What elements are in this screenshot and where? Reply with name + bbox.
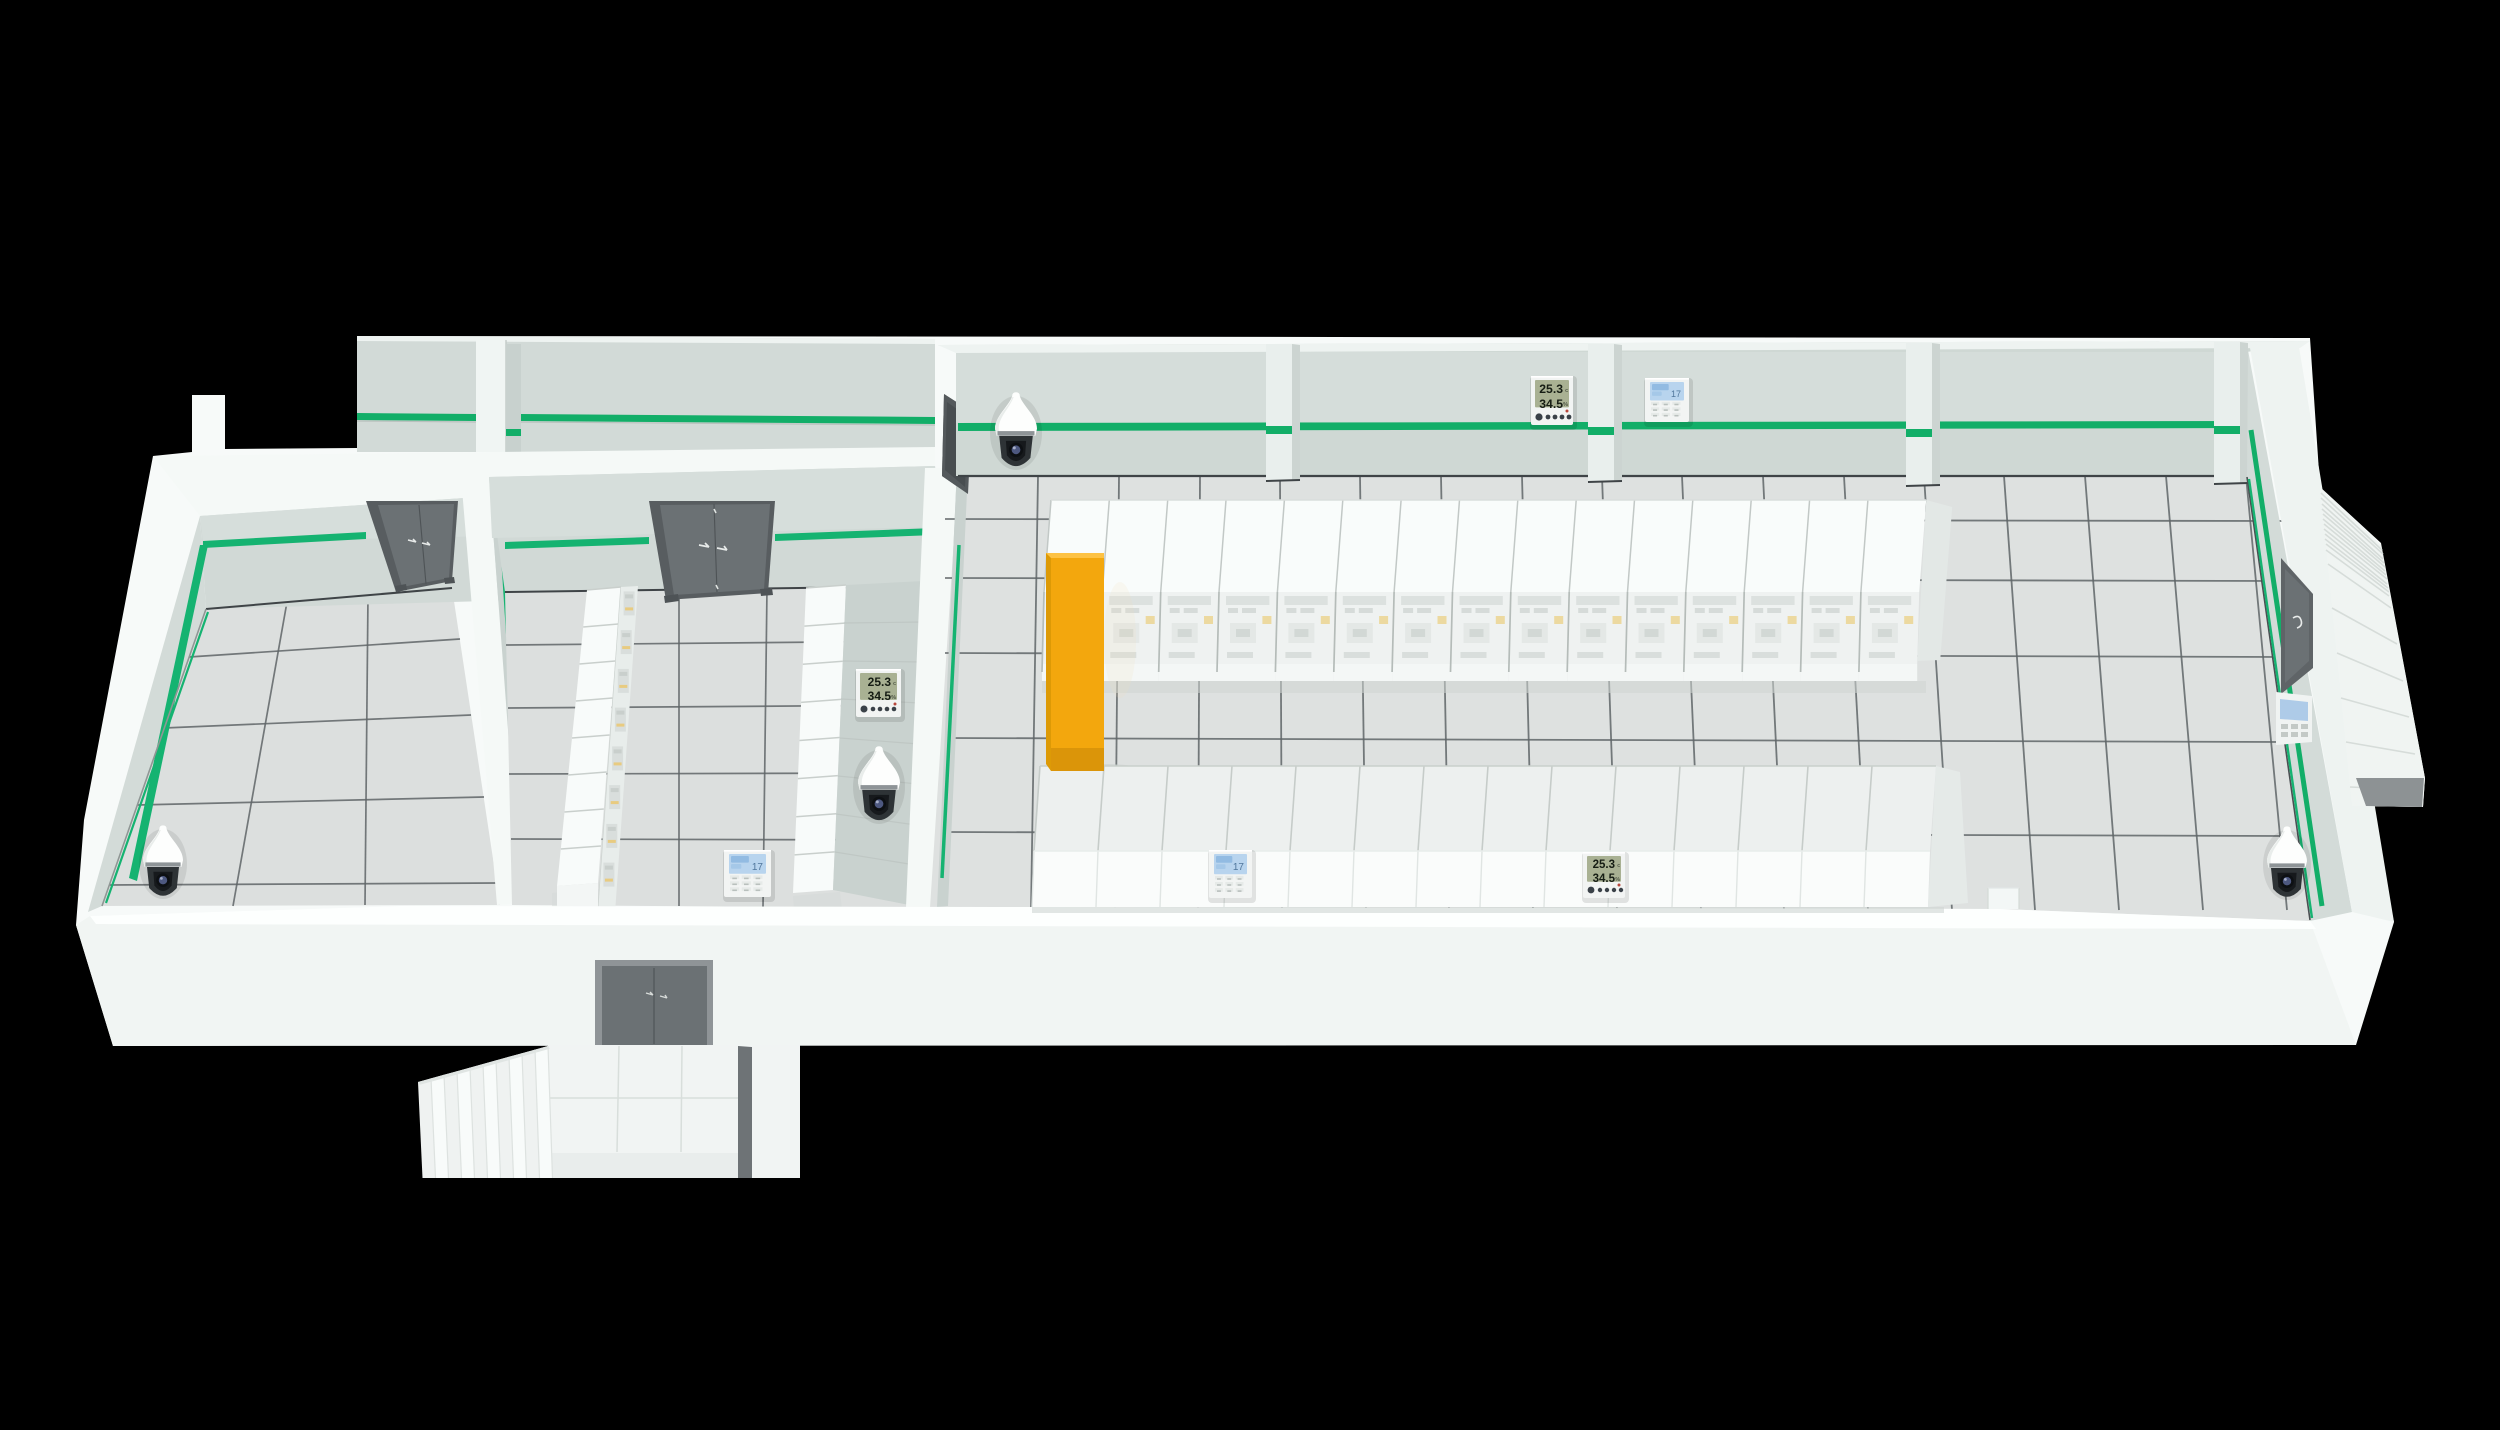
svg-text:17: 17 [1671, 389, 1681, 399]
svg-text:c: c [1565, 388, 1568, 394]
svg-text:25.3: 25.3 [1593, 859, 1615, 871]
svg-text:34.5: 34.5 [1539, 397, 1563, 411]
svg-text:%: % [1563, 402, 1568, 408]
svg-text:25.3: 25.3 [1539, 382, 1563, 396]
svg-text:%: % [1615, 877, 1620, 883]
svg-text:%: % [891, 695, 896, 701]
svg-text:34.5: 34.5 [868, 689, 892, 703]
svg-text:17: 17 [752, 862, 764, 873]
svg-text:34.5: 34.5 [1593, 873, 1616, 885]
svg-text:17: 17 [1233, 862, 1245, 873]
svg-text:25.3: 25.3 [868, 675, 892, 689]
svg-text:c: c [1617, 863, 1620, 869]
svg-text:c: c [893, 681, 896, 687]
